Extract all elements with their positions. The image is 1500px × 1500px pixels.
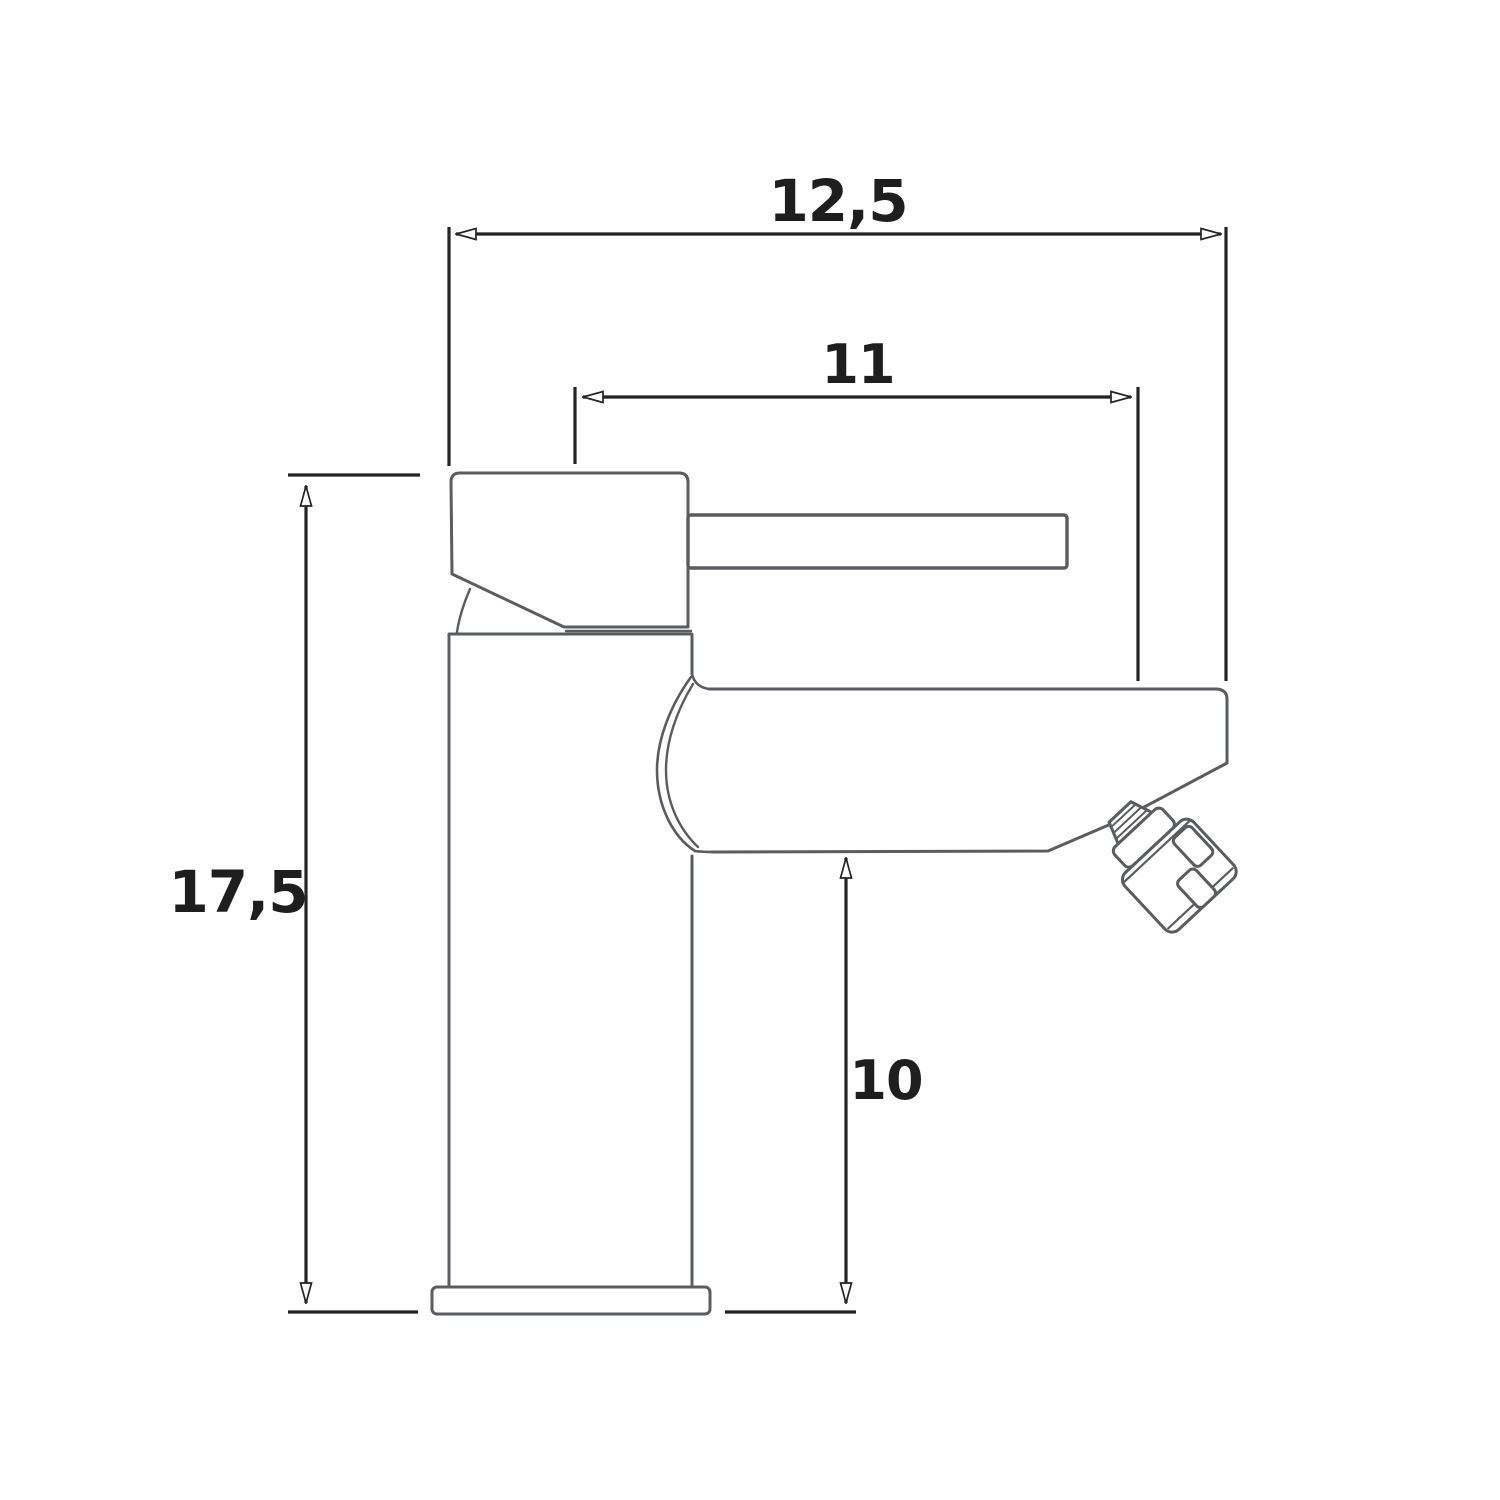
technical-drawing-canvas: 12,5 11 17,5 10	[0, 0, 1500, 1500]
handle-pivot-curve	[457, 589, 470, 632]
faucet-outline-group	[432, 473, 1240, 1314]
dimension-label-spout-width: 11	[821, 338, 894, 392]
spout-top-fillet	[692, 674, 709, 689]
dimension-label-overall-height: 17,5	[168, 863, 307, 921]
handle-cap-outline	[451, 473, 688, 627]
aerator-nozzle	[1086, 780, 1241, 936]
handle-lever-bar	[688, 515, 1067, 568]
faucet-technical-drawing	[0, 0, 1500, 1500]
spout-root-curve-outer	[657, 677, 695, 851]
body-column-outline	[449, 634, 692, 1287]
dimension-label-overall-width: 12,5	[768, 172, 907, 230]
dimension-lines-group	[288, 227, 1226, 1312]
dimension-label-spout-height: 10	[849, 1054, 922, 1108]
base-plate	[432, 1287, 710, 1314]
